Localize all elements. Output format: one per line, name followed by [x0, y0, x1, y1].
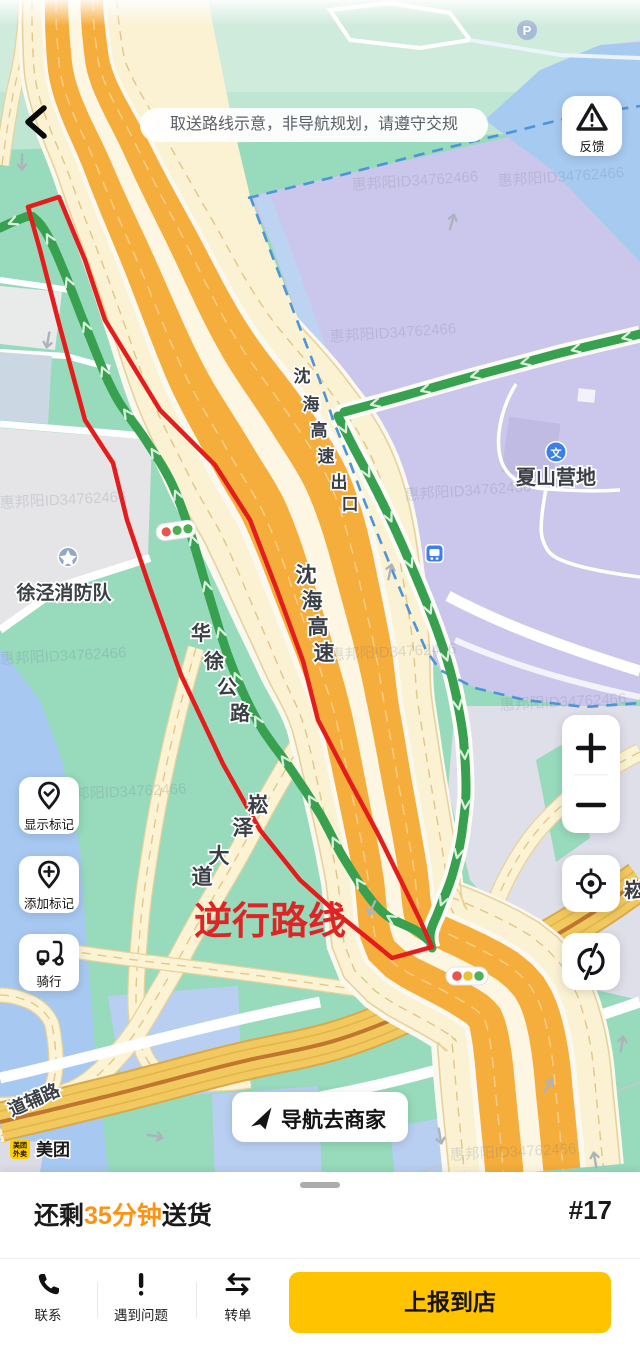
- svg-text:高: 高: [308, 615, 329, 639]
- svg-text:沈: 沈: [296, 563, 317, 587]
- svg-text:沈: 沈: [294, 366, 311, 386]
- svg-text:高: 高: [311, 420, 328, 440]
- svg-text:海: 海: [302, 589, 323, 613]
- svg-text:逆行路线: 逆行路线: [194, 901, 346, 943]
- svg-text:美团: 美团: [13, 1141, 27, 1150]
- svg-text:华: 华: [191, 621, 211, 645]
- svg-text:路: 路: [230, 701, 251, 725]
- svg-text:文: 文: [551, 446, 563, 460]
- svg-text:外卖: 外卖: [13, 1149, 27, 1158]
- svg-text:海: 海: [303, 394, 320, 414]
- svg-text:崧: 崧: [624, 879, 640, 902]
- svg-text:美团: 美团: [36, 1140, 70, 1160]
- svg-text:徐泾消防队: 徐泾消防队: [15, 581, 112, 604]
- svg-text:出: 出: [331, 472, 348, 492]
- svg-text:速: 速: [318, 446, 335, 466]
- svg-text:泽: 泽: [233, 817, 254, 840]
- svg-text:崧: 崧: [248, 793, 269, 817]
- svg-text:大: 大: [209, 845, 230, 868]
- svg-text:口: 口: [342, 495, 359, 514]
- svg-text:道: 道: [192, 865, 213, 889]
- svg-text:徐: 徐: [203, 649, 224, 673]
- svg-text:公: 公: [217, 676, 237, 699]
